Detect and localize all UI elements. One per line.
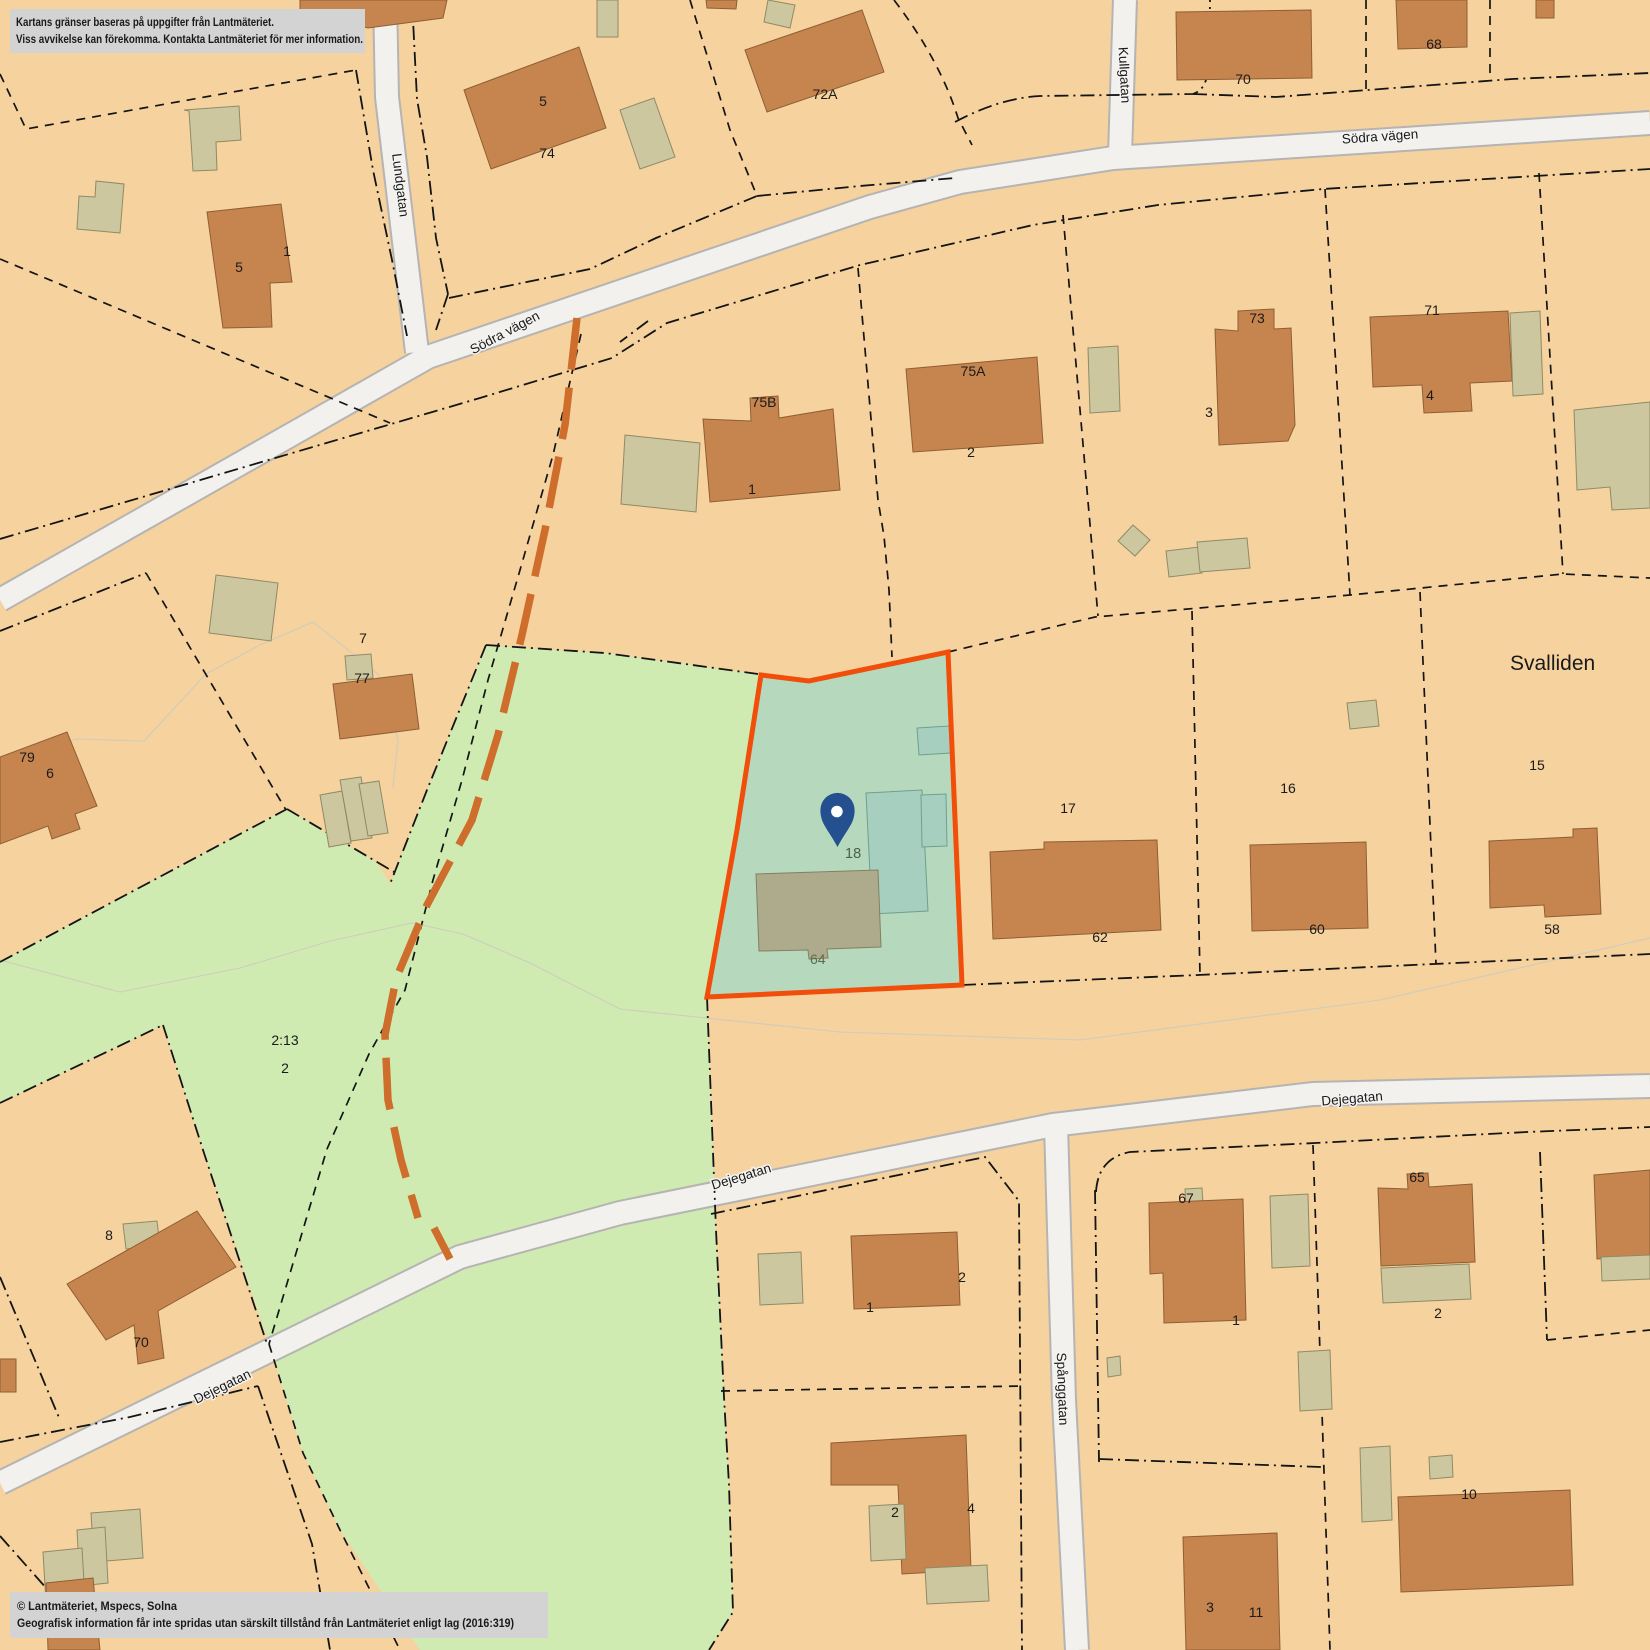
svg-text:1: 1: [1232, 1312, 1240, 1328]
svg-text:18: 18: [845, 846, 861, 862]
svg-text:2: 2: [958, 1269, 966, 1285]
svg-text:70: 70: [1235, 71, 1251, 87]
svg-text:17: 17: [1060, 800, 1076, 816]
svg-text:77: 77: [354, 670, 370, 686]
svg-text:73: 73: [1249, 310, 1265, 326]
svg-text:8: 8: [105, 1227, 113, 1243]
svg-text:75A: 75A: [961, 363, 987, 379]
svg-text:Svalliden: Svalliden: [1510, 652, 1595, 675]
svg-text:60: 60: [1309, 921, 1325, 937]
svg-text:© Lantmäteriet, Mspecs, Solna: © Lantmäteriet, Mspecs, Solna: [17, 1601, 178, 1613]
svg-text:1: 1: [748, 481, 756, 497]
svg-text:Spånggatan: Spånggatan: [1054, 1352, 1072, 1425]
svg-text:1: 1: [283, 243, 291, 259]
svg-text:72A: 72A: [813, 86, 839, 102]
svg-text:2: 2: [967, 444, 975, 460]
svg-text:Kartans gränser baseras på upp: Kartans gränser baseras på uppgifter frå…: [16, 17, 274, 29]
svg-text:74: 74: [539, 145, 555, 161]
svg-text:Kullgatan: Kullgatan: [1116, 47, 1134, 104]
svg-text:65: 65: [1409, 1169, 1425, 1185]
svg-text:3: 3: [1206, 1599, 1214, 1615]
svg-text:7: 7: [359, 630, 367, 646]
svg-text:11: 11: [1249, 1604, 1264, 1620]
svg-text:58: 58: [1544, 921, 1560, 937]
svg-text:10: 10: [1461, 1486, 1477, 1502]
svg-text:Geografisk information får int: Geografisk information får inte spridas …: [17, 1618, 514, 1630]
svg-text:79: 79: [19, 749, 35, 765]
svg-text:62: 62: [1092, 929, 1108, 945]
svg-text:6: 6: [46, 765, 54, 781]
svg-text:5: 5: [539, 93, 547, 109]
svg-text:Viss avvikelse kan förekomma.: Viss avvikelse kan förekomma. Kontakta L…: [16, 34, 363, 46]
svg-text:2: 2: [1434, 1305, 1442, 1321]
svg-text:4: 4: [967, 1500, 975, 1516]
svg-text:75B: 75B: [752, 394, 777, 410]
svg-text:64: 64: [810, 951, 826, 967]
svg-text:2:13: 2:13: [271, 1032, 298, 1048]
svg-text:68: 68: [1426, 36, 1442, 52]
svg-text:70: 70: [133, 1334, 149, 1350]
svg-text:3: 3: [1205, 404, 1213, 420]
svg-text:1: 1: [866, 1299, 874, 1315]
svg-text:16: 16: [1280, 780, 1296, 796]
svg-text:67: 67: [1178, 1190, 1194, 1206]
svg-text:15: 15: [1529, 757, 1545, 773]
svg-text:2: 2: [891, 1504, 899, 1520]
svg-text:5: 5: [235, 259, 243, 275]
svg-text:71: 71: [1424, 302, 1440, 318]
svg-text:4: 4: [1426, 387, 1434, 403]
svg-text:2: 2: [281, 1060, 289, 1076]
